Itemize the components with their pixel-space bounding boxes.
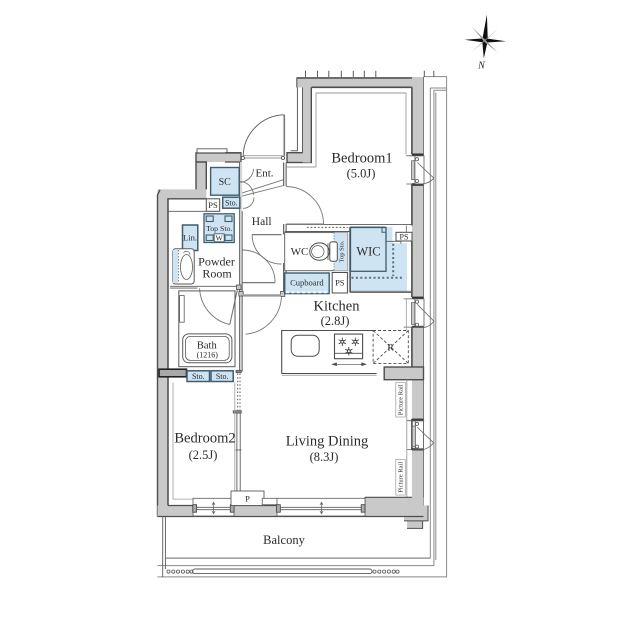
- svg-text:WC: WC: [291, 246, 309, 258]
- svg-text:Bedroom2: Bedroom2: [174, 431, 235, 447]
- svg-text:WIC: WIC: [356, 245, 380, 259]
- svg-text:Sto.: Sto.: [192, 372, 205, 381]
- svg-text:Lin.: Lin.: [183, 233, 197, 243]
- svg-text:Cupboard: Cupboard: [290, 278, 324, 288]
- svg-text:Ent.: Ent.: [255, 168, 273, 180]
- svg-text:Room: Room: [202, 267, 232, 281]
- svg-text:(1216): (1216): [197, 351, 219, 360]
- svg-text:Picture Rail: Picture Rail: [397, 462, 404, 493]
- svg-text:Balcony: Balcony: [263, 533, 305, 547]
- svg-text:Kitchen: Kitchen: [314, 299, 361, 315]
- svg-text:Top Sto.: Top Sto.: [339, 240, 346, 262]
- svg-text:N: N: [477, 61, 486, 72]
- svg-text:P: P: [245, 494, 250, 504]
- svg-text:Living Dining: Living Dining: [286, 434, 369, 450]
- svg-text:Top Sto.: Top Sto.: [206, 224, 232, 233]
- svg-text:Hall: Hall: [252, 216, 272, 228]
- svg-text:(8.3J): (8.3J): [310, 450, 339, 464]
- svg-text:R: R: [387, 344, 394, 354]
- svg-text:(2.5J): (2.5J): [189, 448, 218, 462]
- svg-text:Sto.: Sto.: [225, 199, 238, 208]
- svg-text:Bedroom1: Bedroom1: [331, 151, 392, 167]
- svg-text:SC: SC: [219, 177, 232, 188]
- svg-text:PS: PS: [400, 233, 409, 242]
- svg-text:(5.0J): (5.0J): [347, 167, 376, 181]
- svg-text:Sto.: Sto.: [216, 372, 229, 381]
- svg-text:W: W: [216, 234, 224, 243]
- svg-text:Picture Rail: Picture Rail: [397, 384, 404, 415]
- svg-text:PS: PS: [335, 278, 345, 288]
- svg-text:(2.8J): (2.8J): [321, 314, 350, 328]
- svg-text:PS: PS: [208, 200, 218, 210]
